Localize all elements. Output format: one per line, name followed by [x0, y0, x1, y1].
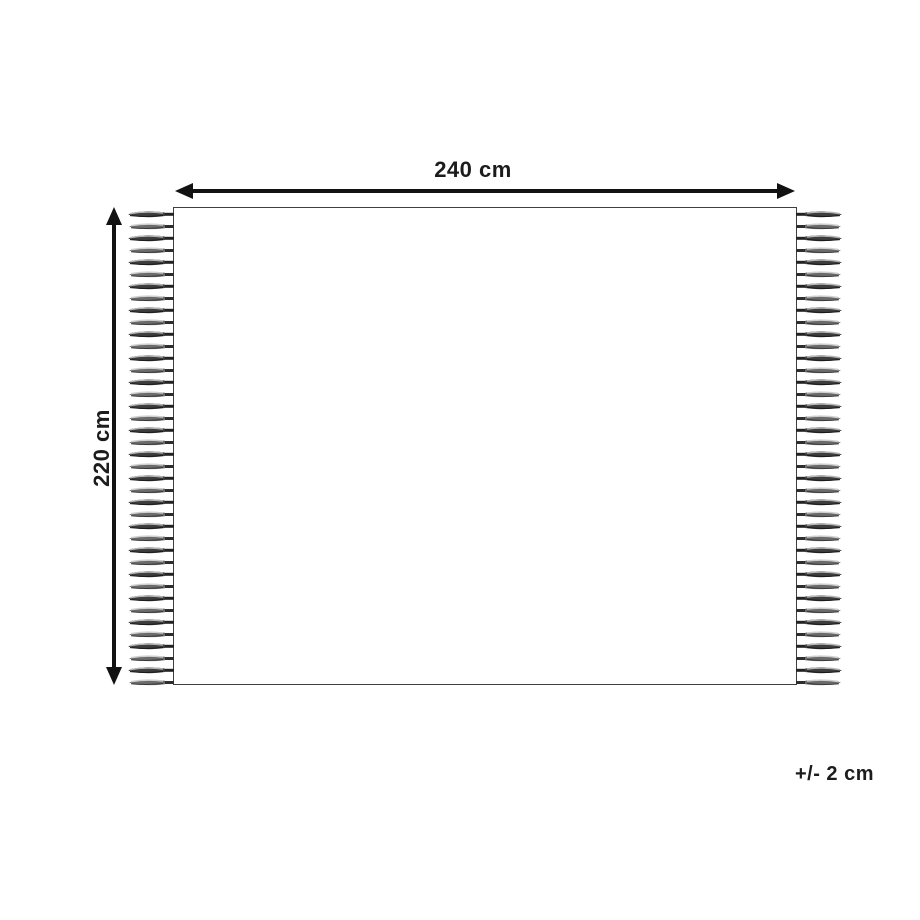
width-dimension-arrow-line [190, 189, 790, 193]
width-arrowhead-right-icon [777, 183, 795, 199]
width-arrowhead-left-icon [175, 183, 193, 199]
tolerance-label: +/- 2 cm [714, 763, 874, 786]
right-fringe-tassels [796, 208, 845, 686]
width-dimension-label: 240 cm [373, 157, 573, 183]
rug-body [173, 207, 797, 685]
height-arrowhead-top-icon [106, 207, 122, 225]
height-arrowhead-bottom-icon [106, 667, 122, 685]
left-fringe-tassels [125, 208, 174, 686]
height-dimension-label: 220 cm [89, 388, 111, 508]
dimension-diagram: 240 cm 220 cm +/- 2 cm [0, 0, 920, 920]
